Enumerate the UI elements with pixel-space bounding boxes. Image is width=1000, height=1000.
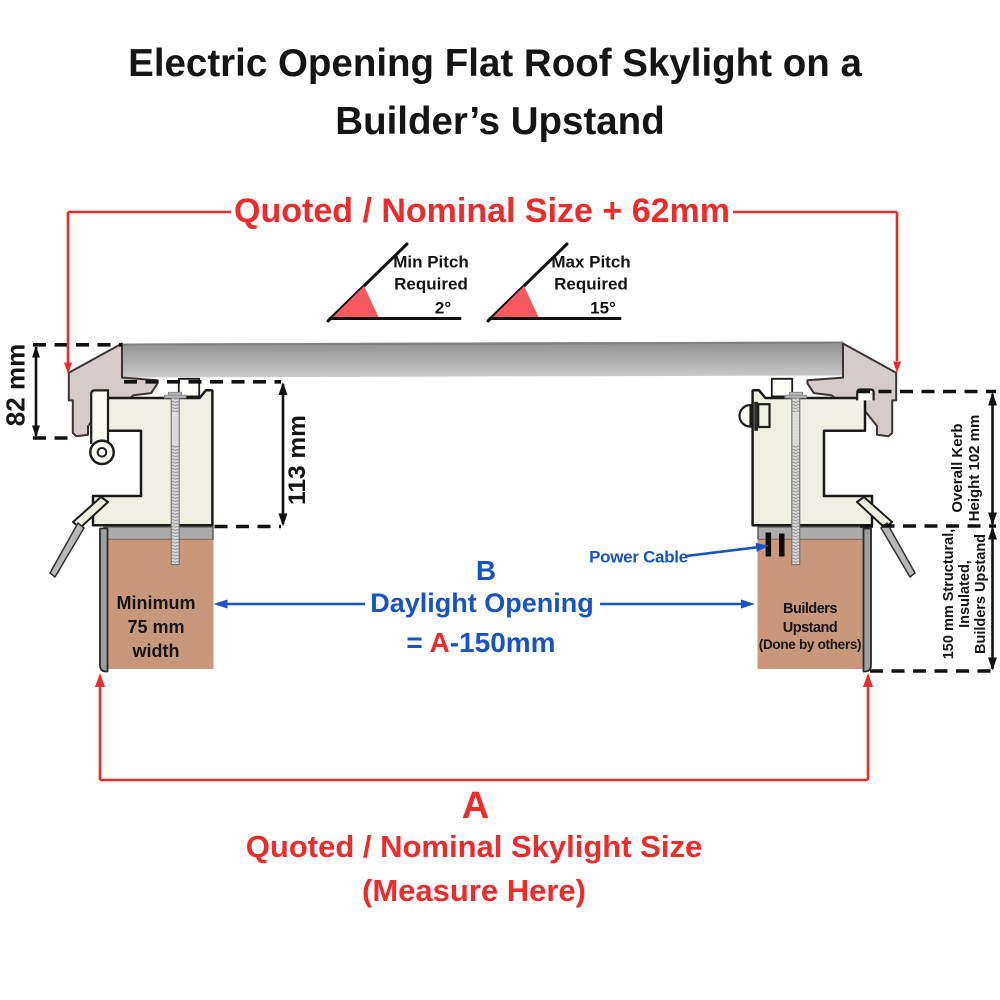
svg-text:150 mm Structural,: 150 mm Structural, [941, 529, 957, 660]
svg-text:82 mm: 82 mm [1, 344, 31, 426]
svg-text:= A-150mm: = A-150mm [406, 627, 555, 658]
svg-text:Min Pitch: Min Pitch [393, 253, 469, 272]
svg-text:(Measure Here): (Measure Here) [362, 873, 586, 908]
svg-text:Builders: Builders [783, 601, 837, 617]
svg-text:2°: 2° [435, 299, 451, 318]
svg-text:Electric Opening Flat Roof Sky: Electric Opening Flat Roof Skylight on a [128, 42, 862, 85]
svg-text:Max Pitch: Max Pitch [551, 253, 630, 272]
svg-text:113 mm: 113 mm [284, 415, 311, 505]
svg-text:Insulated,: Insulated, [957, 560, 973, 628]
svg-text:Quoted / Nominal Size + 62mm: Quoted / Nominal Size + 62mm [234, 192, 730, 230]
svg-text:Power Cable: Power Cable [589, 548, 688, 567]
svg-text:width: width [132, 641, 180, 661]
svg-text:Height 102 mm: Height 102 mm [966, 415, 983, 522]
svg-text:Upstand: Upstand [783, 620, 838, 636]
svg-text:15°: 15° [590, 299, 616, 318]
svg-text:A: A [462, 785, 489, 827]
svg-text:Minimum: Minimum [117, 593, 196, 613]
svg-text:Required: Required [394, 275, 468, 294]
svg-text:Required: Required [554, 275, 628, 294]
svg-text:(Done by others): (Done by others) [759, 637, 861, 652]
svg-text:Builders Upstand: Builders Upstand [973, 534, 989, 654]
svg-text:75 mm: 75 mm [127, 617, 184, 637]
svg-text:B: B [476, 555, 496, 586]
svg-text:Overall Kerb: Overall Kerb [949, 423, 966, 512]
svg-text:Quoted / Nominal Skylight Size: Quoted / Nominal Skylight Size [246, 829, 702, 864]
svg-text:Builder’s Upstand: Builder’s Upstand [335, 100, 664, 143]
svg-text:Daylight Opening: Daylight Opening [370, 588, 594, 618]
